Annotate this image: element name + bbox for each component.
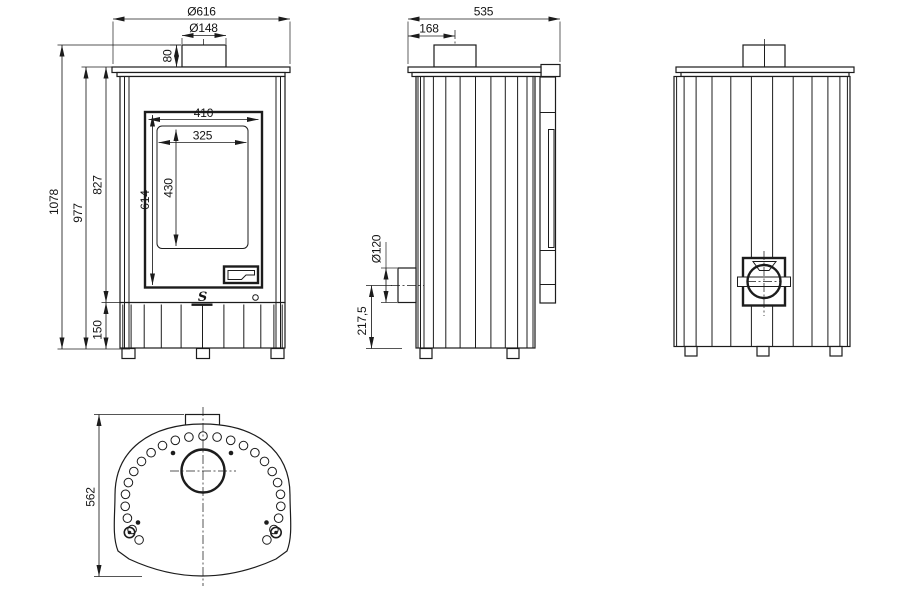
svg-text:150: 150: [91, 320, 105, 340]
svg-text:325: 325: [193, 129, 213, 143]
svg-text:430: 430: [162, 178, 176, 198]
vent-hole: [260, 457, 269, 466]
vent-hole: [239, 441, 248, 450]
svg-text:Ø616: Ø616: [187, 5, 216, 19]
dim-plinth-height: 150: [91, 303, 107, 350]
svg-text:Ø148: Ø148: [189, 21, 218, 35]
svg-text:Ø120: Ø120: [370, 234, 384, 263]
vent-hole: [121, 502, 130, 511]
svg-text:535: 535: [474, 5, 494, 19]
vent-hole: [213, 433, 222, 442]
vent-hole: [277, 502, 286, 511]
back-view: [674, 39, 854, 356]
vent-hole: [263, 536, 272, 545]
dim-flue-diameter: Ø148: [182, 21, 226, 44]
stove-foot: [685, 347, 697, 357]
vent-hole: [137, 457, 146, 466]
fastener-dot: [136, 520, 141, 525]
top-plate-outline: [114, 424, 291, 576]
stove-foot: [122, 349, 135, 359]
side-view: 535 168 Ø120 217,5: [355, 5, 560, 359]
stove-foot: [197, 349, 210, 359]
side-flue-collar: [434, 45, 476, 67]
svg-text:80: 80: [161, 49, 175, 62]
side-door-glass-edge: [549, 130, 555, 248]
svg-text:410: 410: [194, 106, 214, 120]
dim-collar-height: 80: [161, 45, 182, 67]
vent-hole: [268, 467, 277, 476]
vent-hole: [147, 448, 156, 457]
vent-hole: [273, 478, 282, 487]
stove-technical-drawing: S Ø616 Ø148 80: [0, 0, 900, 606]
svg-text:168: 168: [419, 22, 439, 36]
vent-hole: [171, 436, 180, 445]
fastener-dot: [229, 451, 234, 456]
stove-foot: [830, 347, 842, 357]
stove-foot: [757, 347, 769, 357]
svg-text:562: 562: [84, 487, 98, 507]
svg-text:977: 977: [71, 203, 85, 223]
front-flue-collar: [182, 45, 226, 67]
vent-hole: [185, 433, 194, 442]
stove-foot: [271, 349, 284, 359]
back-top-plate: [676, 67, 854, 73]
vent-hole: [276, 490, 285, 499]
vent-hole: [123, 514, 132, 523]
vent-hole: [251, 448, 260, 457]
dim-flue-offset: 168: [408, 22, 455, 37]
vent-hole: [124, 478, 133, 487]
front-top-plate: [112, 67, 290, 73]
dim-air-inlet-height: 217,5: [355, 286, 402, 349]
side-top-plate: [408, 67, 541, 73]
vent-hole: [274, 514, 283, 523]
vent-hole: [130, 467, 139, 476]
stove-foot: [420, 349, 432, 359]
technical-drawing-canvas: S Ø616 Ø148 80: [0, 0, 900, 606]
svg-text:217,5: 217,5: [355, 306, 369, 336]
side-top-plate-front-cap: [541, 65, 560, 77]
svg-text:614: 614: [138, 190, 152, 210]
svg-text:1078: 1078: [47, 189, 61, 215]
vent-hole: [121, 490, 130, 499]
stove-foot: [507, 349, 519, 359]
front-view: S Ø616 Ø148 80: [47, 5, 290, 359]
fastener-dot: [171, 451, 176, 456]
dim-air-inlet-diameter: Ø120: [370, 234, 398, 302]
vent-hole: [226, 436, 235, 445]
svg-text:827: 827: [91, 175, 105, 195]
vent-hole: [135, 536, 144, 545]
fastener-dot: [264, 520, 269, 525]
top-view: 562: [84, 407, 291, 586]
vent-hole: [158, 441, 167, 450]
